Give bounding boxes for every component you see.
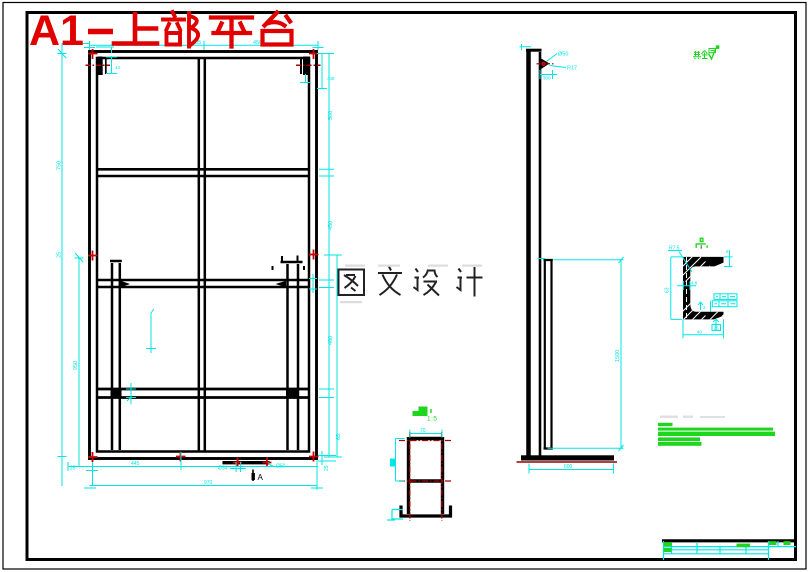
svg-text:65: 65 bbox=[336, 434, 342, 440]
svg-text:25: 25 bbox=[70, 466, 76, 472]
svg-text:R17: R17 bbox=[567, 66, 577, 72]
svg-text:970: 970 bbox=[204, 480, 213, 486]
svg-text:Ø34: Ø34 bbox=[218, 466, 228, 472]
svg-text:500: 500 bbox=[328, 111, 334, 120]
svg-text:445: 445 bbox=[131, 461, 140, 467]
svg-text:448: 448 bbox=[327, 76, 335, 81]
svg-text:A1: A1 bbox=[29, 7, 84, 55]
svg-text:300: 300 bbox=[543, 76, 551, 81]
svg-text:40: 40 bbox=[697, 330, 703, 335]
svg-text:460: 460 bbox=[328, 336, 334, 345]
svg-text:1500: 1500 bbox=[615, 350, 621, 362]
svg-text:1:5: 1:5 bbox=[427, 416, 438, 423]
svg-text:25: 25 bbox=[324, 465, 330, 471]
svg-text:25: 25 bbox=[57, 252, 63, 258]
svg-text:63: 63 bbox=[665, 287, 671, 293]
svg-text:70: 70 bbox=[420, 428, 426, 434]
svg-text:44: 44 bbox=[115, 65, 121, 70]
svg-text:600: 600 bbox=[564, 464, 573, 470]
svg-text:Ø50: Ø50 bbox=[276, 464, 286, 470]
svg-text:750: 750 bbox=[57, 161, 63, 170]
svg-text:950: 950 bbox=[73, 361, 79, 370]
svg-text:A: A bbox=[258, 473, 264, 482]
svg-text:450: 450 bbox=[328, 221, 334, 230]
svg-text:Ø50: Ø50 bbox=[558, 52, 568, 58]
svg-text:4.8: 4.8 bbox=[691, 281, 698, 286]
svg-text:25: 25 bbox=[714, 326, 720, 331]
